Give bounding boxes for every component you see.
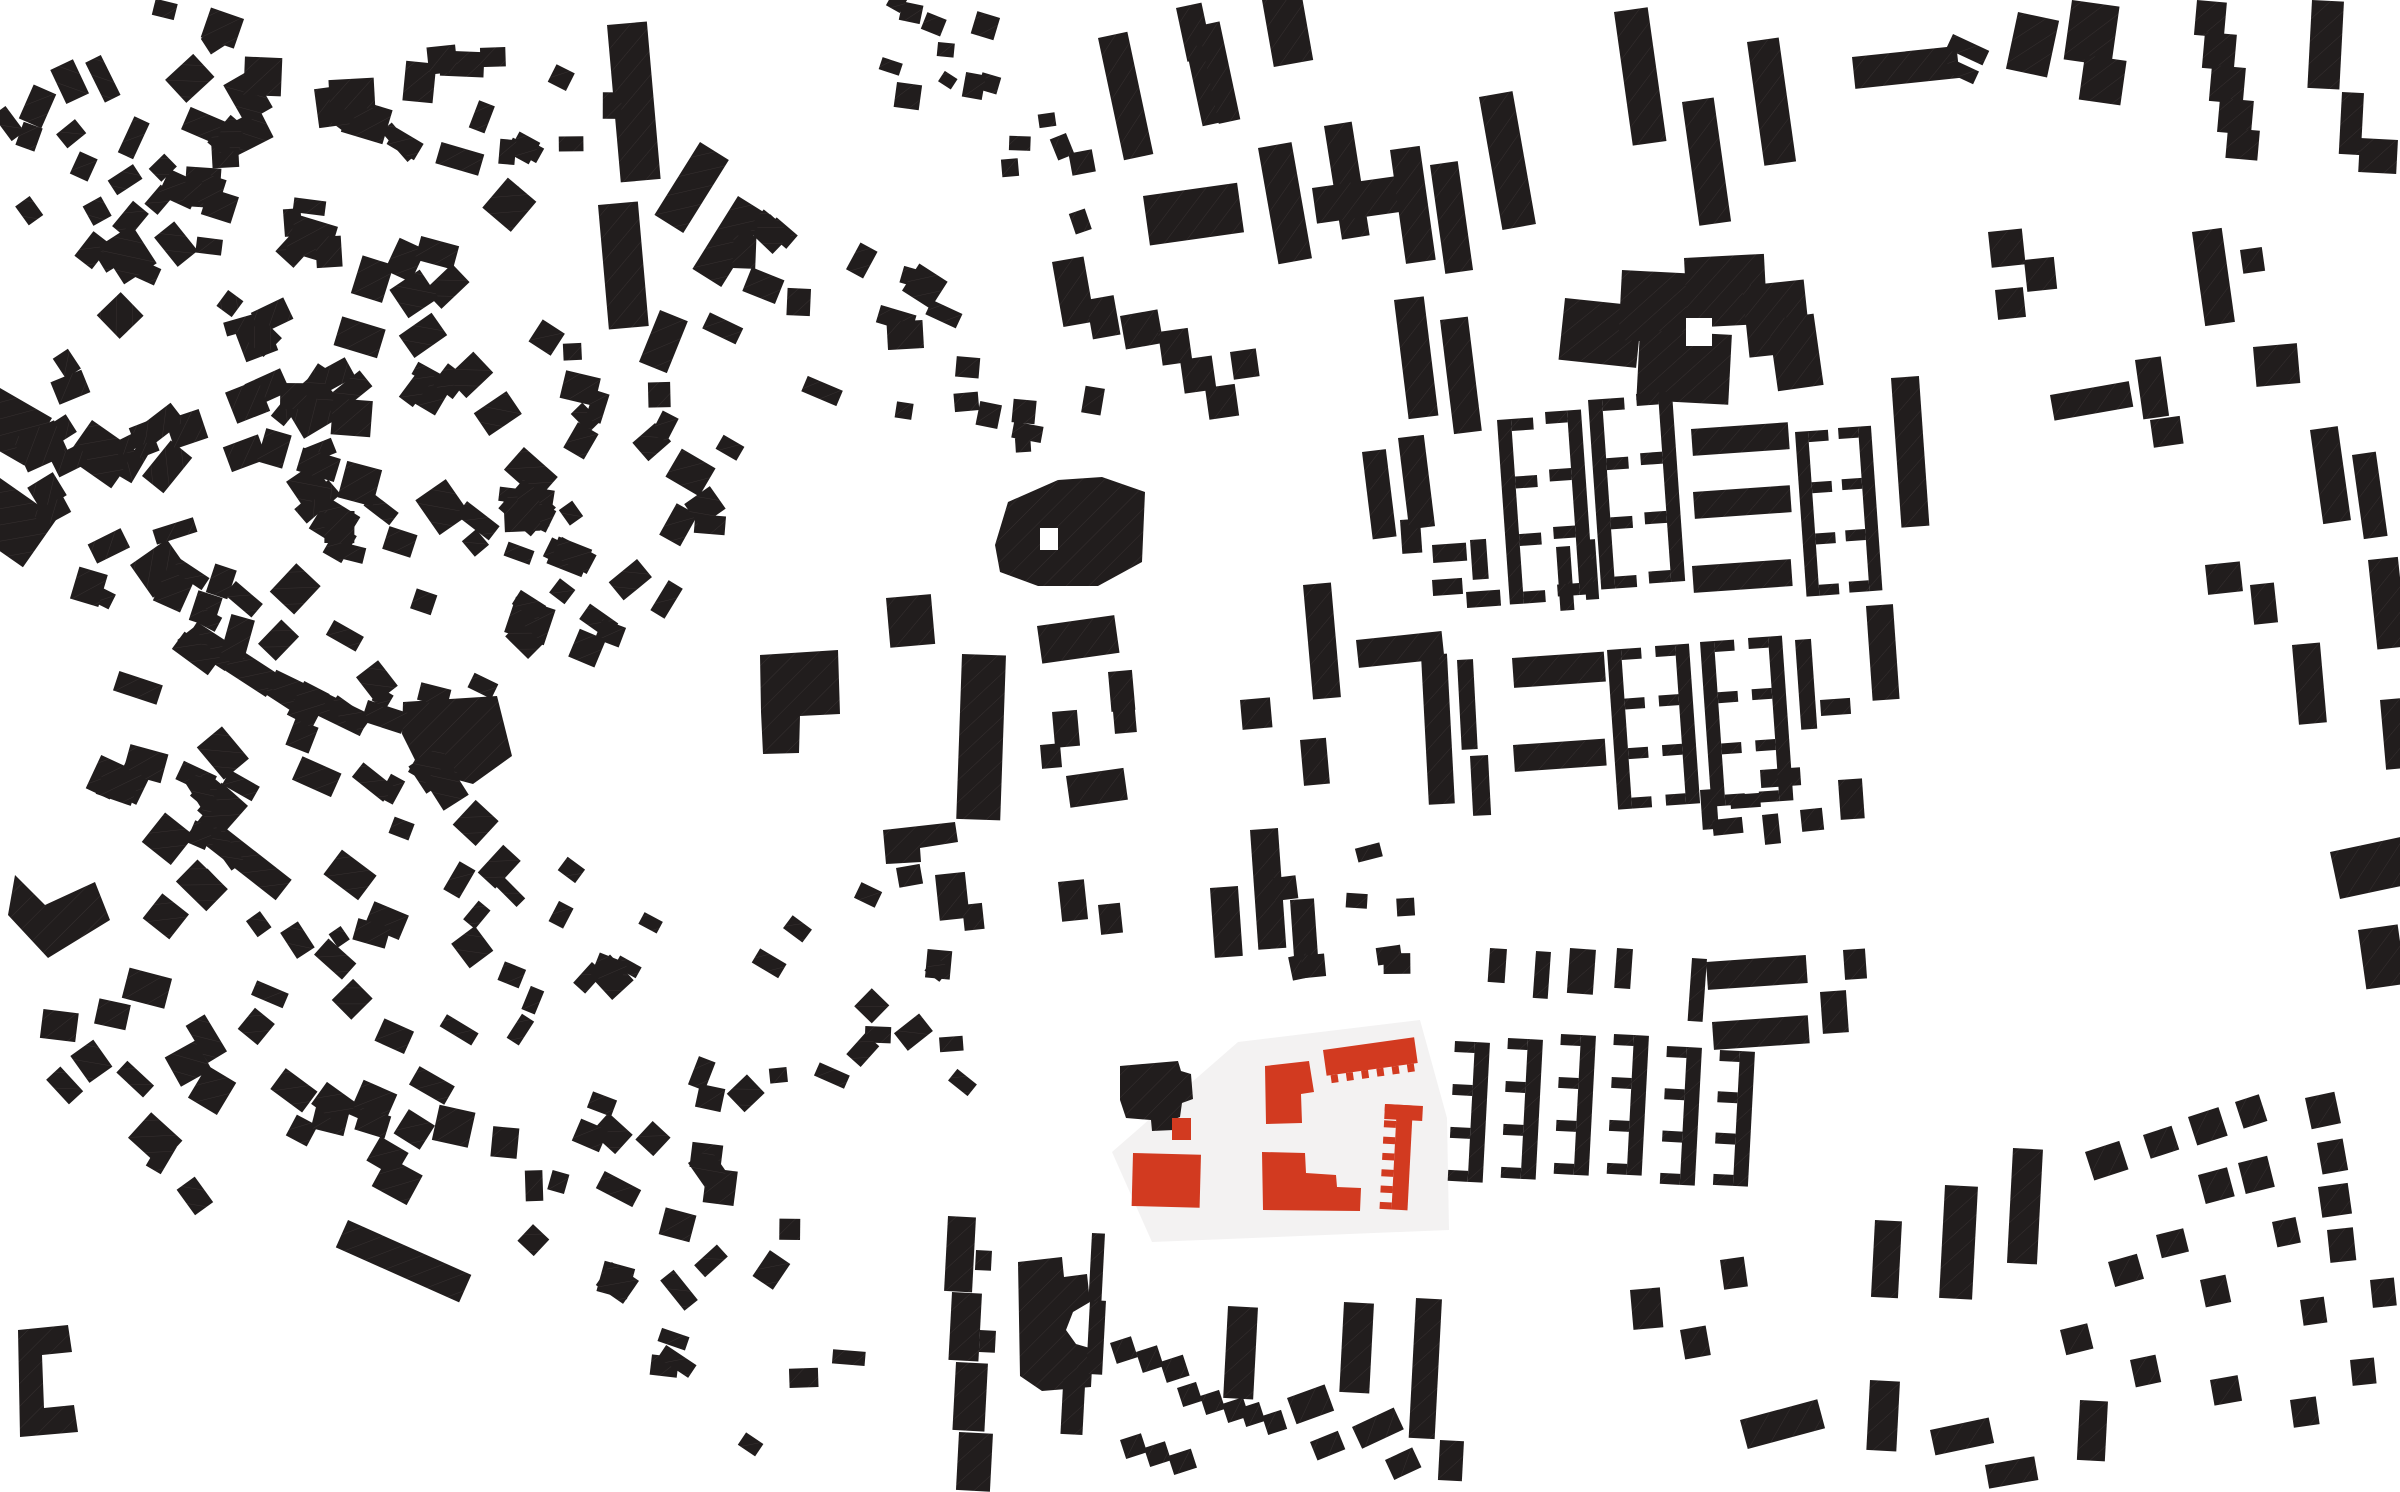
comb-tooth (1640, 452, 1663, 466)
building (2225, 128, 2259, 161)
building (953, 392, 979, 412)
comb-tooth (1717, 1091, 1738, 1103)
building (315, 236, 343, 268)
building (779, 1219, 800, 1240)
comb-tooth (1503, 1124, 1524, 1136)
building (1843, 948, 1867, 979)
comb-tooth (1636, 392, 1659, 406)
building (1205, 384, 1239, 420)
comb-tooth (1721, 742, 1742, 754)
comb-tooth (1382, 1153, 1394, 1161)
building (896, 864, 923, 888)
comb-tooth (1505, 1081, 1526, 1093)
building (1383, 953, 1410, 974)
building (1346, 893, 1368, 909)
building (939, 1036, 964, 1053)
comb-tooth (1384, 1120, 1396, 1128)
building (195, 237, 223, 256)
comb-tooth (1515, 475, 1538, 489)
building (331, 398, 373, 437)
comb-tooth (1407, 1063, 1415, 1072)
building (1210, 886, 1243, 958)
building (1120, 309, 1163, 349)
building (1488, 948, 1507, 983)
comb-tooth (1658, 694, 1679, 706)
building (2194, 0, 2227, 37)
comb-tooth (1519, 533, 1542, 547)
building (1680, 1325, 1711, 1359)
comb-tooth (1845, 529, 1866, 541)
building (1290, 898, 1318, 960)
comb-tooth (1621, 648, 1642, 660)
building (1060, 1366, 1086, 1435)
comb-tooth (1662, 1131, 1683, 1143)
comb-tooth (1511, 417, 1534, 431)
building (1001, 158, 1019, 177)
building (979, 1330, 996, 1353)
comb-tooth (1838, 427, 1859, 439)
building (243, 57, 282, 97)
building (886, 594, 935, 648)
building (1011, 399, 1036, 424)
building (1432, 578, 1463, 596)
building (1438, 1440, 1464, 1481)
comb-tooth (1662, 744, 1683, 756)
comb-tooth (1376, 1068, 1384, 1077)
comb-tooth (1554, 1163, 1575, 1175)
comb-tooth (1755, 739, 1776, 751)
building (2370, 1277, 2397, 1307)
building (2317, 1138, 2348, 1174)
building (1112, 698, 1137, 734)
comb-tooth (1655, 645, 1676, 657)
building (1720, 1257, 1748, 1290)
building (563, 343, 582, 361)
comb-tooth (1819, 583, 1840, 595)
building (648, 382, 671, 408)
building (962, 72, 986, 100)
building (40, 1009, 79, 1042)
comb-tooth (1715, 1133, 1736, 1145)
building (525, 1170, 544, 1201)
building (1866, 1380, 1900, 1451)
building (498, 139, 516, 165)
building (948, 1292, 982, 1361)
building (894, 82, 922, 110)
building (1988, 228, 2026, 267)
comb-tooth (1545, 410, 1568, 424)
comb-tooth (1812, 481, 1833, 493)
building (1712, 817, 1744, 836)
comb-tooth (1808, 430, 1829, 442)
building (1058, 879, 1088, 921)
building (1820, 698, 1851, 716)
building (328, 78, 375, 111)
building (956, 1432, 993, 1492)
building (1040, 743, 1062, 769)
comb-tooth (1448, 1170, 1469, 1182)
comb-tooth (1648, 570, 1671, 584)
building (2240, 247, 2265, 274)
building (490, 1126, 519, 1159)
building (886, 320, 924, 350)
building (480, 47, 506, 67)
comb-tooth (1713, 1174, 1734, 1186)
building (2350, 1357, 2377, 1385)
comb-tooth (1665, 793, 1686, 805)
building (559, 136, 584, 151)
building (1052, 710, 1080, 748)
comb-tooth (1614, 575, 1637, 589)
building (1466, 590, 1501, 608)
building (1240, 697, 1273, 730)
building (975, 1250, 992, 1271)
comb-tooth (1719, 1050, 1740, 1062)
building (1838, 778, 1865, 820)
comb-tooth (1815, 532, 1836, 544)
building (2007, 1148, 2043, 1264)
comb-tooth (1361, 1070, 1369, 1079)
comb-tooth (1644, 511, 1667, 525)
building (1820, 990, 1849, 1034)
building (2290, 1396, 2320, 1427)
comb-tooth (1748, 637, 1769, 649)
building (603, 92, 622, 119)
comb-tooth (1849, 580, 1870, 592)
building (2307, 0, 2344, 90)
comb-tooth (1610, 516, 1633, 530)
map-canvas (0, 0, 2400, 1492)
building (2358, 138, 2398, 174)
building (952, 1362, 988, 1432)
building (1567, 948, 1596, 995)
comb-tooth (1725, 793, 1746, 805)
red-building (1132, 1153, 1201, 1208)
comb-tooth (1331, 1074, 1339, 1083)
comb-tooth (1450, 1127, 1471, 1139)
comb-tooth (1560, 1034, 1581, 1046)
building (1230, 348, 1260, 379)
building (2250, 582, 2278, 624)
building (2079, 55, 2127, 105)
building (956, 654, 1006, 820)
building (2209, 65, 2246, 104)
building (1301, 954, 1326, 979)
comb-tooth (1501, 1167, 1522, 1179)
building (895, 401, 914, 420)
building (2300, 1297, 2327, 1326)
comb-tooth (1549, 468, 1572, 482)
building (1038, 112, 1057, 128)
building (1432, 543, 1467, 563)
courtyard-hole (1040, 528, 1058, 550)
comb-tooth (1380, 1186, 1392, 1194)
comb-tooth (1558, 1077, 1579, 1089)
building (789, 1368, 819, 1388)
building (280, 383, 307, 409)
comb-tooth (1346, 1072, 1354, 1081)
building (832, 1349, 866, 1366)
comb-tooth (1660, 1173, 1681, 1185)
comb-tooth (1392, 1066, 1400, 1075)
comb-tooth (1507, 1038, 1528, 1050)
building (944, 1216, 976, 1292)
comb-tooth (1628, 747, 1649, 759)
building (2024, 257, 2057, 292)
building (1800, 808, 1824, 832)
comb-tooth (1752, 688, 1773, 700)
building (1098, 903, 1123, 935)
comb-tooth (1664, 1088, 1685, 1100)
building (1614, 948, 1633, 989)
comb-tooth (1759, 790, 1780, 802)
building (504, 500, 541, 533)
building (1939, 1185, 1978, 1300)
building (976, 401, 1002, 429)
comb-tooth (1714, 640, 1735, 652)
building (1396, 898, 1415, 917)
building (786, 288, 811, 316)
building (962, 903, 985, 931)
comb-tooth (1718, 691, 1739, 703)
building (2318, 1183, 2352, 1218)
building (1009, 136, 1031, 151)
comb-tooth (1553, 526, 1576, 540)
comb-tooth (1631, 796, 1652, 808)
comb-tooth (1611, 1077, 1632, 1089)
comb-tooth (1624, 697, 1645, 709)
comb-tooth (1380, 1202, 1392, 1210)
comb-tooth (1383, 1137, 1395, 1145)
building (324, 511, 354, 543)
comb-cap (1384, 1104, 1423, 1121)
comb-tooth (1602, 397, 1625, 411)
building (426, 44, 457, 74)
building (2253, 343, 2300, 387)
building (2202, 32, 2237, 71)
building (1762, 813, 1781, 845)
building (1995, 287, 2026, 320)
building (1512, 652, 1606, 688)
comb-tooth (1607, 1163, 1628, 1175)
building (1272, 875, 1298, 901)
comb-tooth (1666, 1046, 1687, 1058)
comb-tooth (1609, 1120, 1630, 1132)
comb-tooth (1523, 590, 1546, 604)
building (1223, 1306, 1258, 1399)
building (769, 1067, 788, 1084)
figure-ground-map (0, 0, 2400, 1492)
comb-tooth (1452, 1084, 1473, 1096)
building (2150, 416, 2184, 448)
building (1871, 1220, 1902, 1298)
comb-tooth (1606, 457, 1629, 471)
building (1300, 738, 1330, 786)
building (1470, 755, 1491, 816)
building (2210, 1375, 2242, 1405)
building (1630, 1287, 1663, 1329)
building (1470, 539, 1489, 580)
comb-tooth (1842, 478, 1863, 490)
building (2327, 1227, 2356, 1263)
comb-tooth (1556, 1120, 1577, 1132)
comb-tooth (1454, 1041, 1475, 1053)
building (1339, 1302, 1374, 1393)
building (2077, 1400, 2108, 1461)
comb-tooth (1381, 1169, 1393, 1177)
building (937, 42, 955, 58)
courtyard-hole (1686, 318, 1712, 346)
red-building (1172, 1118, 1191, 1140)
building (2205, 561, 2243, 594)
comb-tooth (1613, 1034, 1634, 1046)
building (732, 235, 756, 269)
comb-tooth (1557, 583, 1580, 597)
building (955, 356, 980, 378)
